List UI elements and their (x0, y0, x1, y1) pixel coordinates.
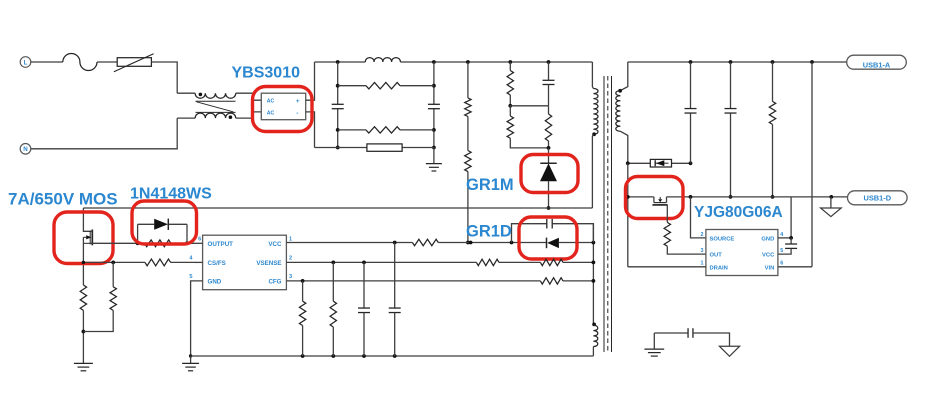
svg-text:CFG: CFG (268, 278, 281, 285)
svg-text:VSENSE: VSENSE (256, 260, 281, 267)
svg-text:VIN: VIN (765, 265, 775, 271)
svg-text:USB1-D: USB1-D (864, 194, 892, 203)
svg-text:VCC: VCC (762, 253, 775, 259)
svg-text:OUT: OUT (710, 253, 723, 259)
svg-text:4: 4 (189, 256, 193, 262)
svg-text:+: + (296, 98, 300, 105)
svg-text:-: - (296, 110, 298, 117)
svg-text:5: 5 (189, 274, 192, 280)
svg-text:1N4148WS: 1N4148WS (130, 185, 212, 202)
svg-text:CS/FS: CS/FS (208, 260, 226, 267)
svg-text:VCC: VCC (268, 241, 282, 248)
svg-text:SOURCE: SOURCE (710, 236, 735, 242)
svg-text:5: 5 (780, 248, 783, 254)
svg-text:DRAIN: DRAIN (710, 265, 728, 271)
svg-text:1: 1 (289, 237, 292, 243)
svg-text:GR1M: GR1M (466, 176, 514, 194)
svg-text:YJG80G06A: YJG80G06A (694, 204, 783, 221)
svg-text:YBS3010: YBS3010 (232, 65, 301, 82)
svg-text:GND: GND (761, 236, 774, 242)
svg-text:4: 4 (780, 232, 783, 238)
svg-text:N: N (23, 146, 28, 153)
svg-text:1: 1 (701, 261, 704, 267)
svg-text:7A/650V MOS: 7A/650V MOS (8, 190, 118, 209)
svg-text:USB1-A: USB1-A (863, 60, 891, 69)
svg-text:L: L (24, 59, 28, 66)
svg-text:OUTPUT: OUTPUT (208, 241, 234, 248)
svg-text:2: 2 (701, 232, 704, 238)
svg-text:GR1D: GR1D (466, 223, 512, 241)
svg-text:AC: AC (267, 111, 275, 117)
svg-text:2: 2 (289, 256, 292, 262)
svg-text:3: 3 (289, 274, 292, 280)
svg-text:6: 6 (198, 237, 201, 243)
svg-text:3: 3 (701, 248, 704, 254)
svg-text:AC: AC (267, 99, 275, 105)
svg-text:GND: GND (208, 278, 222, 285)
svg-text:6: 6 (780, 261, 783, 267)
